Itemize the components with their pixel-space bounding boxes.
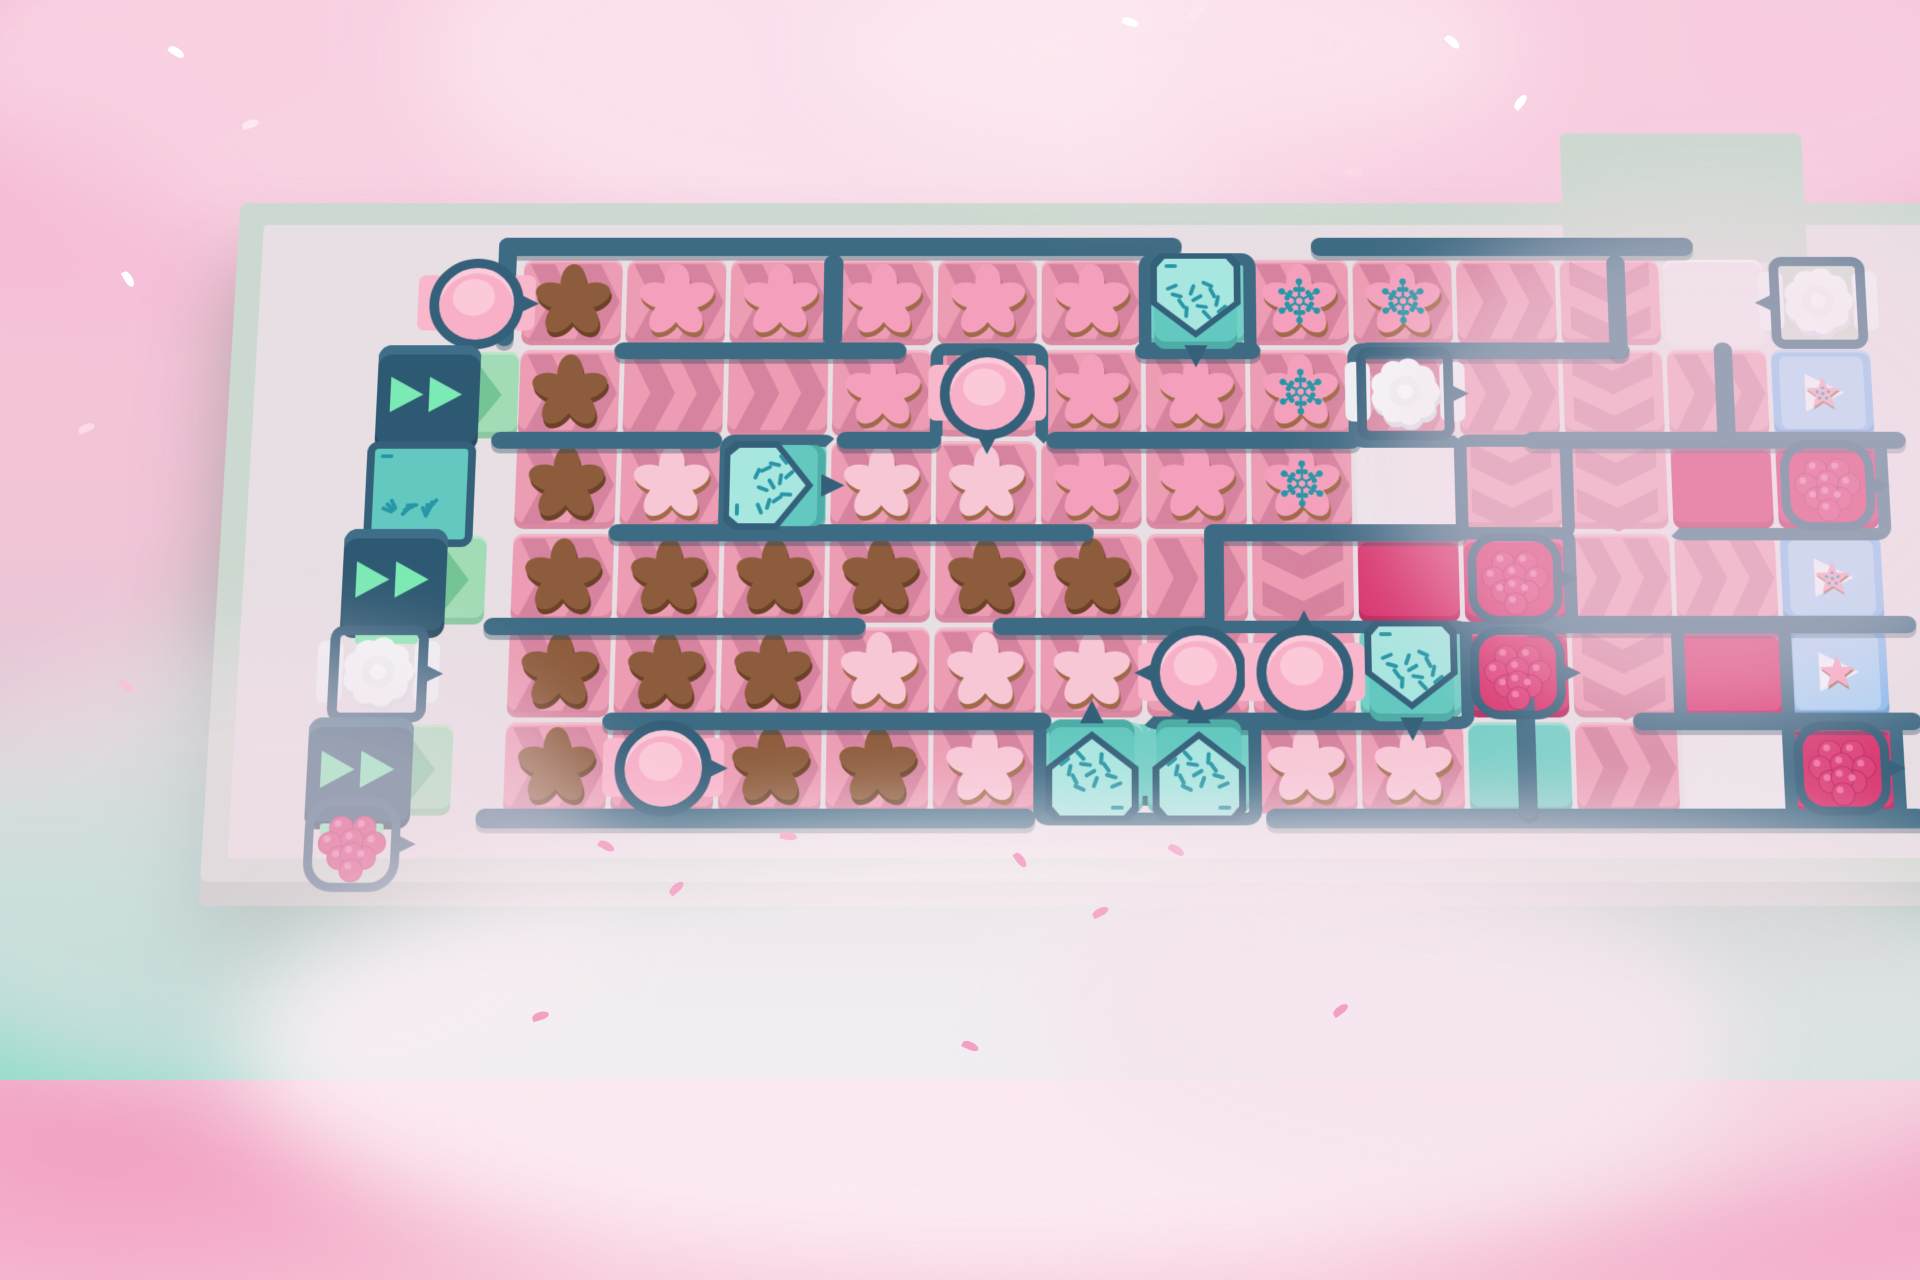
conveyor-chevrons (503, 722, 608, 813)
conveyor-tile[interactable] (729, 260, 830, 346)
lane-wall (1606, 255, 1629, 359)
chevron-icon (1405, 264, 1451, 340)
chevron-icon (832, 727, 879, 808)
conveyor-chevrons (934, 627, 1036, 717)
chevron-icon (1629, 727, 1678, 808)
lane-wall (1204, 524, 1468, 541)
chevron-icon (880, 727, 927, 808)
conveyor-chevrons (616, 534, 719, 623)
lane-wall (1311, 238, 1694, 256)
chevron-icon (1359, 264, 1405, 340)
chevron-icon (510, 727, 559, 808)
conveyor-chevrons (1458, 350, 1560, 437)
chevron-icon (884, 446, 930, 524)
conveyor-chevrons (622, 350, 724, 437)
conveyor-tile[interactable] (720, 627, 823, 717)
chevron-icon (835, 538, 881, 617)
cream-dispenser[interactable] (1356, 347, 1455, 440)
conveyor-chevrons (1254, 722, 1358, 813)
sprinkle-icon (1217, 781, 1230, 790)
conveyor-tile[interactable] (1251, 441, 1353, 529)
chevron-icon (564, 538, 612, 617)
chevron-icon (1728, 538, 1777, 617)
chevron-icon (987, 727, 1033, 808)
conveyor-chevrons (829, 534, 931, 623)
conveyor-tile[interactable] (616, 534, 719, 623)
fast-forward-icon (360, 751, 396, 788)
sprinkle-icon (753, 467, 762, 480)
chevron-icon (620, 632, 668, 712)
chevron-icon (1153, 446, 1198, 524)
conveyor-chevrons (1041, 534, 1142, 623)
conveyor-tile[interactable] (1568, 534, 1672, 623)
chevron-icon (886, 264, 931, 340)
chevron-icon (676, 355, 723, 432)
sprinkle-icon (1379, 632, 1392, 636)
sprinkle-dispenser[interactable] (1148, 716, 1250, 822)
lane-wall (499, 238, 1182, 256)
sprinkle-icon (1385, 661, 1398, 668)
speed-dispenser-box[interactable] (340, 529, 449, 630)
raspberry-dispenser[interactable] (301, 797, 401, 892)
fast-forward-icon (390, 377, 425, 412)
chevron-icon (1471, 488, 1553, 532)
chevron-icon (1048, 446, 1093, 524)
sprinkle-icon (1199, 775, 1207, 788)
conveyor-tile[interactable] (830, 441, 931, 529)
sprinkle-icon (1380, 652, 1393, 660)
chevron-icon (1200, 446, 1246, 524)
chevron-icon (1509, 264, 1556, 340)
sprinkle-icon (778, 473, 784, 486)
raspberry-cage (1792, 721, 1892, 815)
lane-wall (483, 618, 866, 635)
chevron-icon (1465, 355, 1512, 432)
chevron-icon (1309, 727, 1356, 808)
conveyor-chevrons (1567, 345, 1660, 441)
chevron-icon (1095, 264, 1139, 340)
chevron-icon (1048, 538, 1093, 617)
conveyor-tile[interactable] (1565, 441, 1668, 529)
conveyor-chevrons (722, 534, 825, 623)
sprinkle-icon (1208, 287, 1217, 299)
sprinkle-icon (1165, 264, 1177, 268)
chevron-icon (989, 446, 1034, 524)
conveyor-chevrons (832, 350, 933, 437)
frosting-swirl-icon (1174, 647, 1218, 686)
conveyor-tile[interactable] (503, 722, 608, 813)
sprinkle-icon (1176, 298, 1186, 310)
goal-tile[interactable] (1771, 350, 1875, 437)
conveyor-tile[interactable] (514, 441, 617, 529)
raspberry-cage (301, 797, 401, 892)
chevron-icon (839, 355, 885, 432)
goal-tile[interactable] (1779, 534, 1884, 623)
chevron-icon (777, 538, 824, 617)
conveyor-tile[interactable] (1250, 350, 1351, 437)
chevron-icon (1582, 727, 1631, 808)
floor-gap (1682, 722, 1788, 813)
conveyor-tile[interactable] (1042, 260, 1141, 346)
chevron-icon (514, 632, 562, 712)
conveyor-chevrons (1146, 441, 1247, 529)
conveyor-tile[interactable] (613, 627, 717, 717)
frosting-dispenser[interactable] (939, 348, 1034, 439)
chevron-icon (673, 446, 720, 524)
chevron-icon (1258, 446, 1304, 524)
conveyor-chevrons (933, 722, 1036, 813)
conveyor-tile[interactable] (1575, 722, 1681, 813)
chevron-icon (1304, 446, 1350, 524)
raspberry-dispenser[interactable] (1467, 533, 1564, 625)
chevron-icon (989, 538, 1034, 617)
conveyor-chevrons (619, 441, 722, 529)
sprinkle-icon (783, 469, 795, 480)
lane-wall (614, 343, 906, 359)
cream-frame (1768, 257, 1869, 349)
sprinkle-icon (406, 503, 419, 508)
conveyor-tile[interactable] (832, 350, 933, 437)
chevron-icon (1511, 355, 1558, 432)
chevron-icon (561, 632, 609, 712)
chevron-icon (574, 264, 621, 340)
chevron-icon (940, 727, 986, 808)
conveyor-tile[interactable] (1456, 260, 1558, 346)
sprinkle-icon (1188, 284, 1196, 296)
raspberry-dispenser[interactable] (1792, 721, 1892, 815)
sprinkle-icon (1110, 781, 1123, 790)
chevron-icon (941, 632, 987, 712)
chevron-icon (1302, 264, 1347, 340)
chevron-icon (840, 264, 885, 340)
conveyor-chevrons (729, 260, 830, 346)
sprinkle-icon (755, 502, 763, 515)
magenta-floor-tile[interactable] (1678, 627, 1784, 717)
frosting-swirl-icon (963, 368, 1006, 405)
sprinkle-icon (1073, 784, 1086, 793)
conveyor-tile[interactable] (1249, 260, 1349, 346)
sprinkle-icon (1079, 762, 1092, 768)
lane-wall (823, 255, 843, 345)
sprinkle-icon (1411, 674, 1424, 680)
lane-wall (837, 432, 942, 449)
conveyor-chevrons (1570, 437, 1664, 534)
sprinkle-icon (1195, 304, 1208, 309)
cream-dispenser[interactable] (1768, 257, 1869, 349)
chevron-icon (734, 355, 780, 432)
chevron-icon (944, 264, 989, 340)
sprinkle-dispenser[interactable] (1360, 621, 1463, 726)
chevron-icon (1153, 538, 1199, 617)
chevron-icon (1048, 355, 1093, 432)
sprinkle-icon (1218, 806, 1231, 810)
lane-wall (1523, 616, 1916, 633)
chevron-icon (1256, 264, 1301, 340)
conveyor-chevrons (1250, 350, 1351, 437)
chevron-icon (775, 632, 822, 712)
conveyor-chevrons (1042, 260, 1141, 346)
conveyor-tile[interactable] (1146, 441, 1247, 529)
chevron-icon (571, 355, 618, 432)
puzzle-board (200, 203, 1920, 882)
chevron-icon (988, 632, 1034, 712)
chevron-icon (1047, 632, 1092, 712)
conveyor-tile[interactable] (934, 627, 1036, 717)
lane-wall (475, 809, 1035, 828)
chevron-icon (729, 538, 776, 617)
chevron-icon (670, 538, 717, 617)
chevron-icon (626, 446, 673, 524)
sprinkle-icon (1091, 775, 1099, 788)
chevron-icon (991, 264, 1036, 340)
chevron-icon (1095, 538, 1140, 617)
sprinkle-icon (1182, 750, 1194, 762)
sprinkle-icon (381, 454, 394, 458)
cream-frame (326, 626, 429, 723)
floor-gap (1356, 441, 1458, 529)
chevron-icon (524, 355, 571, 432)
chevron-icon (942, 446, 987, 524)
sprinkle-dispenser[interactable] (1146, 253, 1245, 352)
chevron-icon (517, 538, 565, 617)
conveyor-tile[interactable] (935, 534, 1036, 623)
magenta-floor-tile[interactable] (1670, 441, 1774, 529)
conveyor-chevrons (1568, 534, 1672, 623)
sprinkle-icon (1424, 656, 1434, 669)
lane-wall (608, 524, 1093, 541)
conveyor-tile[interactable] (619, 441, 722, 529)
chevron-icon (727, 632, 774, 712)
chevron-icon (558, 727, 606, 808)
conveyor-chevrons (1575, 722, 1681, 813)
chevron-icon (834, 632, 881, 712)
sprinkle-icon (1392, 668, 1403, 681)
conveyor-chevrons (510, 534, 614, 623)
conveyor-chevrons (625, 260, 726, 346)
chevron-icon (632, 264, 678, 340)
conveyor-chevrons (935, 534, 1036, 623)
sprinkle-icon (760, 464, 773, 473)
conveyor-tile[interactable] (1041, 441, 1142, 529)
chevron-icon (881, 632, 927, 712)
chevron-icon (837, 446, 883, 524)
conveyor-chevrons (1465, 437, 1558, 534)
sprinkle-icon (1417, 679, 1429, 691)
raspberry-dispenser[interactable] (1779, 440, 1877, 531)
sprinkle-dispenser[interactable] (1041, 716, 1143, 822)
sprinkle-icon (1180, 784, 1193, 793)
frosting-swirl-icon (1280, 647, 1324, 686)
conveyor-tile[interactable] (510, 534, 614, 623)
sprinkle-icon (1191, 294, 1204, 303)
chevron-icon (1575, 443, 1657, 486)
floor-gap (1663, 260, 1766, 346)
sprinkle-icon (1165, 283, 1178, 291)
conveyor-tile[interactable] (829, 534, 931, 623)
raspberry-cage (1779, 440, 1877, 531)
conveyor-chevrons (1249, 260, 1349, 346)
chevron-icon (1257, 355, 1303, 432)
chevron-icon (1681, 538, 1729, 617)
chevron-icon (942, 538, 988, 617)
conveyor-tile[interactable] (1460, 441, 1563, 529)
conveyor-tile[interactable] (1458, 350, 1560, 437)
magenta-floor-tile[interactable] (1357, 534, 1460, 623)
chevron-icon (773, 727, 820, 808)
conveyor-chevrons (613, 627, 717, 717)
conveyor-chevrons (514, 441, 617, 529)
chevron-icon (1262, 536, 1344, 580)
conveyor-chevrons (1041, 350, 1141, 437)
chevron-icon (1470, 443, 1552, 486)
chevron-icon (885, 355, 930, 432)
conveyor-tile[interactable] (1254, 722, 1358, 813)
sprinkle-icon (1075, 750, 1087, 762)
lane-wall (1047, 432, 1362, 449)
conveyor-tile[interactable] (827, 627, 930, 717)
conveyor-chevrons (937, 260, 1037, 346)
conveyor-chevrons (718, 722, 822, 813)
cream-frame (1356, 347, 1455, 440)
fast-forward-icon (320, 751, 356, 788)
conveyor-tile[interactable] (1041, 350, 1141, 437)
sprinkle-icon (1111, 806, 1124, 810)
frosting-dispenser[interactable] (613, 720, 713, 816)
fast-forward-icon (355, 561, 390, 597)
conveyor-chevrons (518, 350, 621, 437)
conveyor-chevrons (1251, 441, 1353, 529)
conveyor-chevrons (1456, 260, 1558, 346)
raspberry-dispenser[interactable] (1469, 626, 1566, 719)
chevron-icon (1416, 727, 1464, 808)
chevron-icon (1199, 355, 1244, 432)
goal-tile[interactable] (1784, 627, 1890, 717)
chevron-icon (1095, 355, 1140, 432)
sprinkle-icon (1105, 773, 1119, 780)
chevron-icon (629, 355, 676, 432)
chevron-icon (1622, 538, 1670, 617)
conveyor-tile[interactable] (937, 260, 1037, 346)
sprinkle-icon (1404, 653, 1412, 666)
conveyor-tile[interactable] (722, 534, 825, 623)
chevron-icon (1048, 264, 1092, 340)
chevron-icon (1095, 632, 1141, 712)
chevron-icon (883, 538, 929, 617)
sprinkle-icon (1170, 292, 1183, 299)
raspberry-cage (1467, 533, 1564, 625)
chevron-icon (1463, 264, 1509, 340)
speed-dispenser-box[interactable] (375, 345, 482, 444)
sprinkle-icon (1201, 309, 1212, 320)
conveyor-chevrons (727, 350, 828, 437)
conveyor-chevrons (506, 627, 611, 717)
chevron-icon (568, 446, 615, 524)
conveyor-chevrons (936, 441, 1037, 529)
conveyor-chevrons (1146, 534, 1248, 623)
chevron-icon (1575, 538, 1623, 617)
chevron-icon (725, 727, 772, 808)
conveyor-tile[interactable] (1572, 627, 1677, 717)
sprinkle-icon (735, 503, 739, 515)
sprinkle-icon (1186, 762, 1199, 768)
frosting-dispenser[interactable] (1256, 626, 1354, 721)
conveyor-tile[interactable] (1352, 260, 1453, 346)
conveyor-chevrons (827, 627, 930, 717)
conveyor-tile[interactable] (933, 722, 1036, 813)
cream-dispenser[interactable] (326, 626, 429, 723)
chevron-icon (1095, 446, 1140, 524)
conveyor-tile[interactable] (1041, 534, 1142, 623)
conveyor-tile[interactable] (825, 722, 928, 813)
sprinkle-icon (1212, 773, 1225, 780)
chevron-icon (780, 355, 826, 432)
conveyor-tile[interactable] (718, 722, 822, 813)
conveyor-tile[interactable] (833, 260, 933, 346)
chevron-icon (782, 264, 828, 340)
chevron-icon (668, 632, 716, 712)
chevron-icon (1261, 727, 1308, 808)
conveyor-tile[interactable] (1146, 534, 1248, 623)
conveyor-tile[interactable] (936, 441, 1037, 529)
sprinkle-dispenser[interactable] (723, 437, 830, 533)
frosting-dispenser[interactable] (427, 259, 525, 349)
conveyor-tile[interactable] (622, 350, 724, 437)
conveyor-chevrons (1674, 534, 1779, 623)
chevron-icon (521, 446, 569, 524)
conveyor-chevrons (1576, 623, 1671, 723)
chevron-icon (1581, 629, 1664, 673)
conveyor-tile[interactable] (1674, 534, 1779, 623)
chevron-icon (1577, 488, 1660, 532)
chevron-icon (678, 264, 724, 340)
conveyor-chevrons (825, 722, 928, 813)
conveyor-chevrons (1041, 441, 1142, 529)
conveyor-tile[interactable] (727, 350, 828, 437)
sprinkle-icon (756, 485, 769, 493)
fast-forward-icon (394, 561, 429, 597)
sprinkle-icon (765, 497, 772, 510)
lane-wall (491, 432, 722, 449)
fast-forward-icon (428, 377, 462, 412)
conveyor-tile[interactable] (506, 627, 611, 717)
raspberry-cage (1469, 626, 1566, 719)
conveyor-chevrons (1352, 260, 1453, 346)
chevron-icon (1303, 355, 1349, 432)
conveyor-tile[interactable] (625, 260, 726, 346)
sprinkle-icon (428, 497, 439, 509)
conveyor-chevrons (833, 260, 933, 346)
conveyor-tile[interactable] (1562, 350, 1665, 437)
conveyor-tile[interactable] (518, 350, 621, 437)
sprinkle-icon (771, 494, 784, 504)
chevron-icon (1368, 727, 1415, 808)
conveyor-tile[interactable] (1252, 534, 1354, 623)
chevron-icon (1152, 355, 1197, 432)
chevron-icon (623, 538, 670, 617)
chevron-icon (736, 264, 782, 340)
conveyor-chevrons (830, 441, 931, 529)
conveyor-chevrons (720, 627, 823, 717)
sprinkle-icon (1406, 663, 1419, 673)
